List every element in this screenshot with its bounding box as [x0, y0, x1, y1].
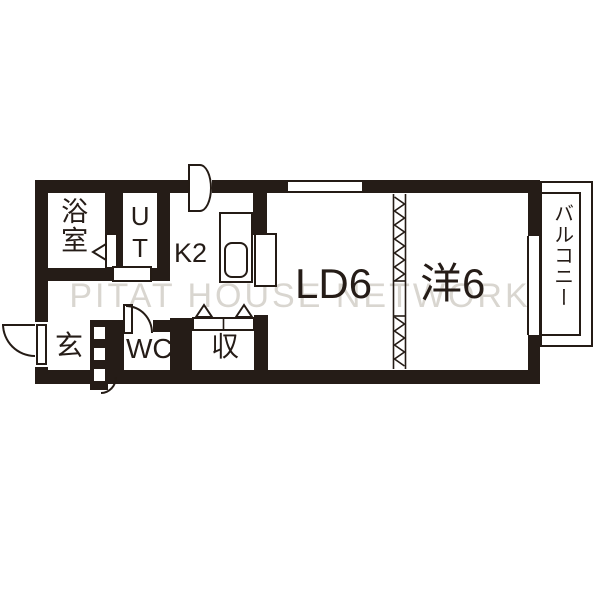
room-label-balcony: バルコニー [550, 203, 572, 308]
wall-kitchen-ld-stub [253, 180, 267, 235]
kitchen-sink [224, 242, 248, 278]
front-door-swing-arc [2, 324, 35, 357]
room-label-wc: WC [126, 334, 173, 364]
wall-wc-storage [170, 318, 192, 371]
window-balcony [527, 236, 541, 335]
wall-ut-kitchen [157, 180, 170, 281]
wall-right-lower [528, 335, 540, 384]
room-label-entrance: 玄 [55, 331, 83, 361]
storage-bifold-door [192, 317, 255, 331]
front-door-leaf [36, 324, 47, 365]
bathroom-door-leaf [105, 233, 118, 269]
room-label-kitchen: K2 [174, 239, 207, 268]
room-label-storage: 収 [211, 332, 239, 362]
window-top [288, 180, 362, 193]
floor-plan: PITAT HOUSE NETWORK [0, 0, 600, 600]
room-label-bathroom: 浴室 [57, 197, 86, 255]
room-label-living-dining: LD6 [295, 261, 372, 306]
hatch-square [94, 327, 105, 339]
counter-ld-side [254, 233, 277, 287]
wall-wc-left [108, 320, 124, 370]
wall-right-upper [528, 180, 540, 236]
small-door-arc [101, 377, 117, 394]
wall-ld-left-lower [254, 315, 268, 371]
room-label-utility: UT [126, 201, 154, 265]
room-label-western-room: 洋6 [420, 261, 485, 306]
entry-door-swing [188, 164, 212, 212]
hatch-square [94, 348, 105, 360]
ut-doorway [112, 266, 152, 282]
